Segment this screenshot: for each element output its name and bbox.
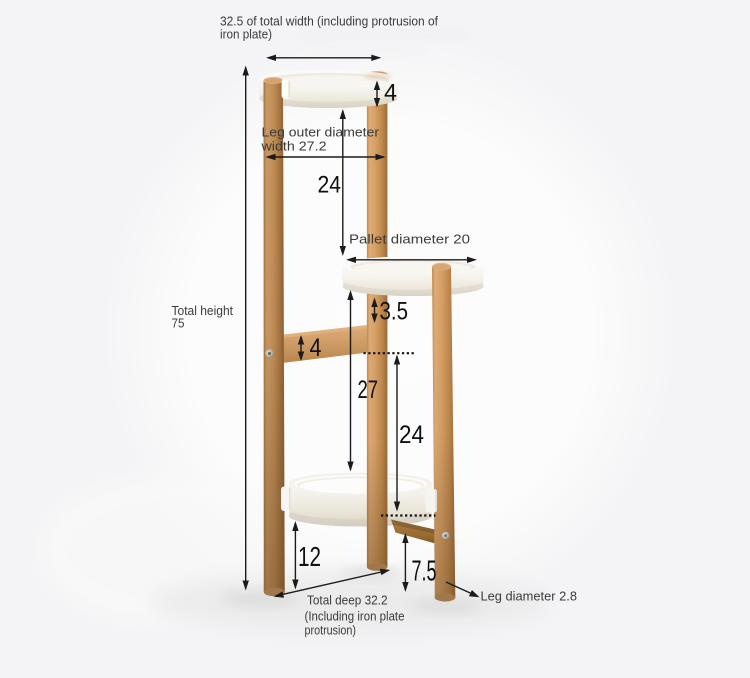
svg-text:4: 4 [310, 334, 322, 362]
svg-text:24: 24 [318, 171, 342, 198]
svg-text:24: 24 [399, 421, 424, 449]
svg-text:12: 12 [298, 541, 321, 572]
svg-text:4: 4 [384, 80, 397, 107]
svg-text:protrusion): protrusion) [305, 623, 357, 638]
svg-text:Total deep 32.2: Total deep 32.2 [307, 593, 388, 608]
svg-text:Leg diameter 2.8: Leg diameter 2.8 [481, 589, 578, 604]
svg-text:Leg outer diameter: Leg outer diameter [262, 125, 380, 140]
svg-text:(Including iron plate: (Including iron plate [305, 609, 405, 624]
svg-text:3.5: 3.5 [380, 298, 409, 326]
svg-text:7.5: 7.5 [412, 556, 437, 588]
svg-text:iron plate): iron plate) [220, 27, 272, 42]
svg-text:27: 27 [358, 376, 379, 404]
svg-text:width 27.2: width 27.2 [260, 139, 326, 154]
svg-text:75: 75 [172, 316, 185, 331]
svg-text:Pallet diameter 20: Pallet diameter 20 [349, 232, 470, 247]
